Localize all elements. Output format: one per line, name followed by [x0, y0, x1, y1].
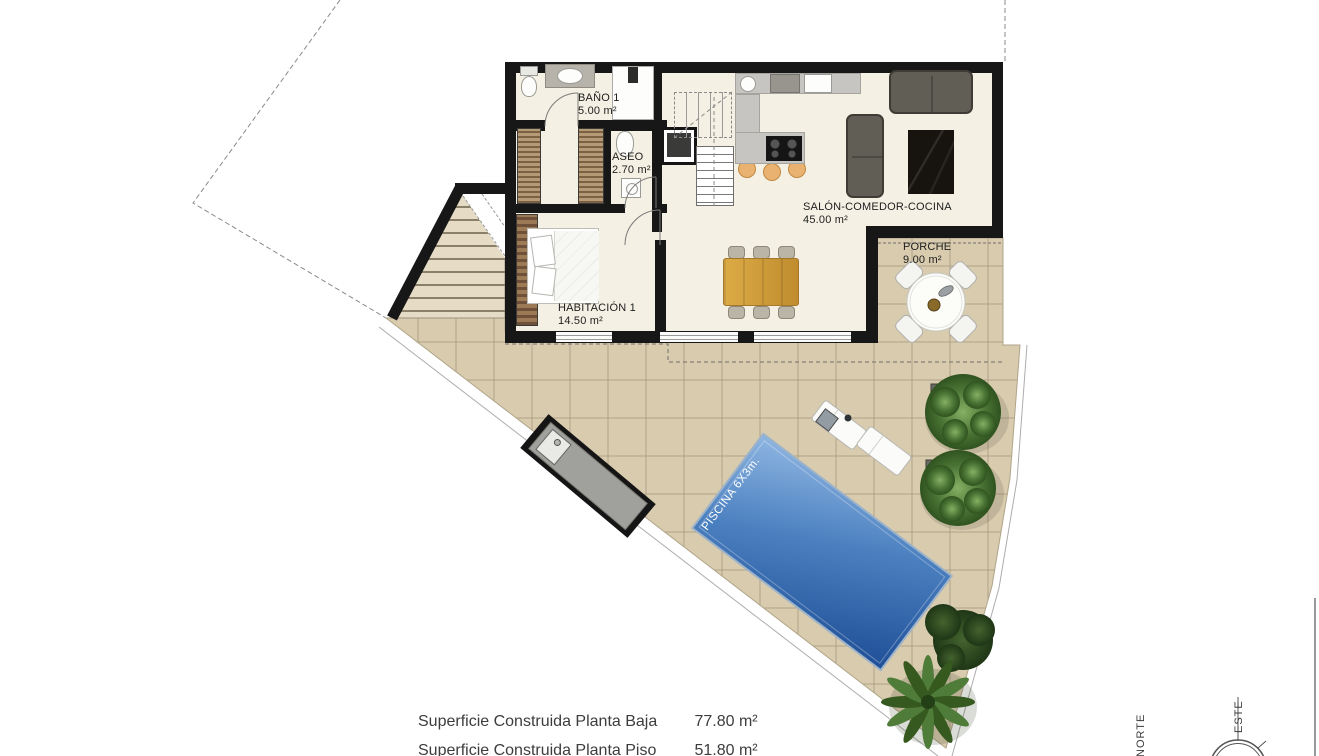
room-area: 2.70 m²: [612, 164, 651, 177]
room-name: PORCHE: [903, 241, 951, 253]
stairs-lower-flight: [696, 146, 734, 206]
fridge: [804, 74, 832, 93]
room-name: HABITACIÓN 1: [558, 302, 636, 314]
surface-label: Superficie Construida Planta Baja: [418, 713, 690, 731]
wall-porch-stub: [866, 226, 878, 343]
toilet-tank: [520, 66, 538, 76]
dining-chair: [753, 306, 770, 319]
cooktop: [766, 136, 802, 161]
bed: [527, 228, 599, 304]
room-area: 45.00 m²: [803, 214, 952, 227]
wardrobe-2: [578, 128, 604, 204]
wall-corridor-bottom-a: [505, 204, 625, 213]
room-name: SALÓN-COMEDOR-COCINA: [803, 201, 952, 213]
dining-chair: [728, 306, 745, 319]
building-layer: [0, 0, 1319, 756]
wall-porch-top: [866, 226, 1003, 238]
room-label-aseo: ASEO 2.70 m²: [612, 151, 651, 177]
wall-left: [505, 62, 516, 343]
floorplan-canvas: PISCINA 6X3m.: [0, 0, 1319, 756]
surface-label: Superficie Construida Planta Piso: [418, 742, 690, 756]
page-edge-line: [1314, 598, 1316, 756]
room-label-habitacion1: HABITACIÓN 1 14.50 m²: [558, 302, 636, 328]
toilet-bath1: [521, 76, 537, 97]
dining-chair: [778, 306, 795, 319]
surface-value: 77.80 m²: [694, 713, 757, 731]
wardrobe-1: [517, 128, 541, 204]
wall-bedroom-divider: [655, 240, 666, 334]
sink-bath1: [557, 68, 583, 84]
kitchen-sink: [740, 76, 756, 92]
pillow-2: [531, 266, 556, 296]
room-name: BAÑO 1: [578, 92, 620, 104]
room-label-salon: SALÓN-COMEDOR-COCINA 45.00 m²: [803, 201, 952, 227]
window-living-1: [660, 332, 738, 342]
pillow-1: [530, 235, 556, 268]
surface-value: 51.80 m²: [694, 742, 757, 756]
kitchen-appliance: [770, 74, 800, 93]
wall-stairs-stub: [455, 183, 507, 194]
window-bedroom: [556, 332, 612, 342]
sink-aseo-basin: [626, 183, 638, 195]
bar-stool-2: [763, 163, 781, 181]
stairs-upper-flight: [674, 92, 732, 138]
room-area: 5.00 m²: [578, 105, 620, 118]
footer-row-planta-piso: Superficie Construida Planta Piso 51.80 …: [418, 742, 758, 756]
marble-rug: [908, 130, 954, 194]
duvet: [554, 231, 599, 301]
room-area: 14.50 m²: [558, 315, 636, 328]
wall-right: [992, 62, 1003, 238]
footer-row-planta-baja: Superficie Construida Planta Baja 77.80 …: [418, 713, 758, 731]
wall-aseo-divider: [604, 131, 611, 204]
room-name: ASEO: [612, 151, 643, 163]
window-living-2: [754, 332, 851, 342]
room-area: 9.00 m²: [903, 254, 951, 267]
room-label-porche: PORCHE 9.00 m²: [903, 241, 951, 267]
dining-table: [723, 258, 799, 306]
wall-corridor-bottom-b: [656, 204, 667, 213]
shower-fixture: [628, 67, 638, 83]
sofa-side: [846, 114, 884, 198]
room-label-bano1: BAÑO 1 5.00 m²: [578, 92, 620, 118]
sofa-top: [889, 70, 973, 114]
